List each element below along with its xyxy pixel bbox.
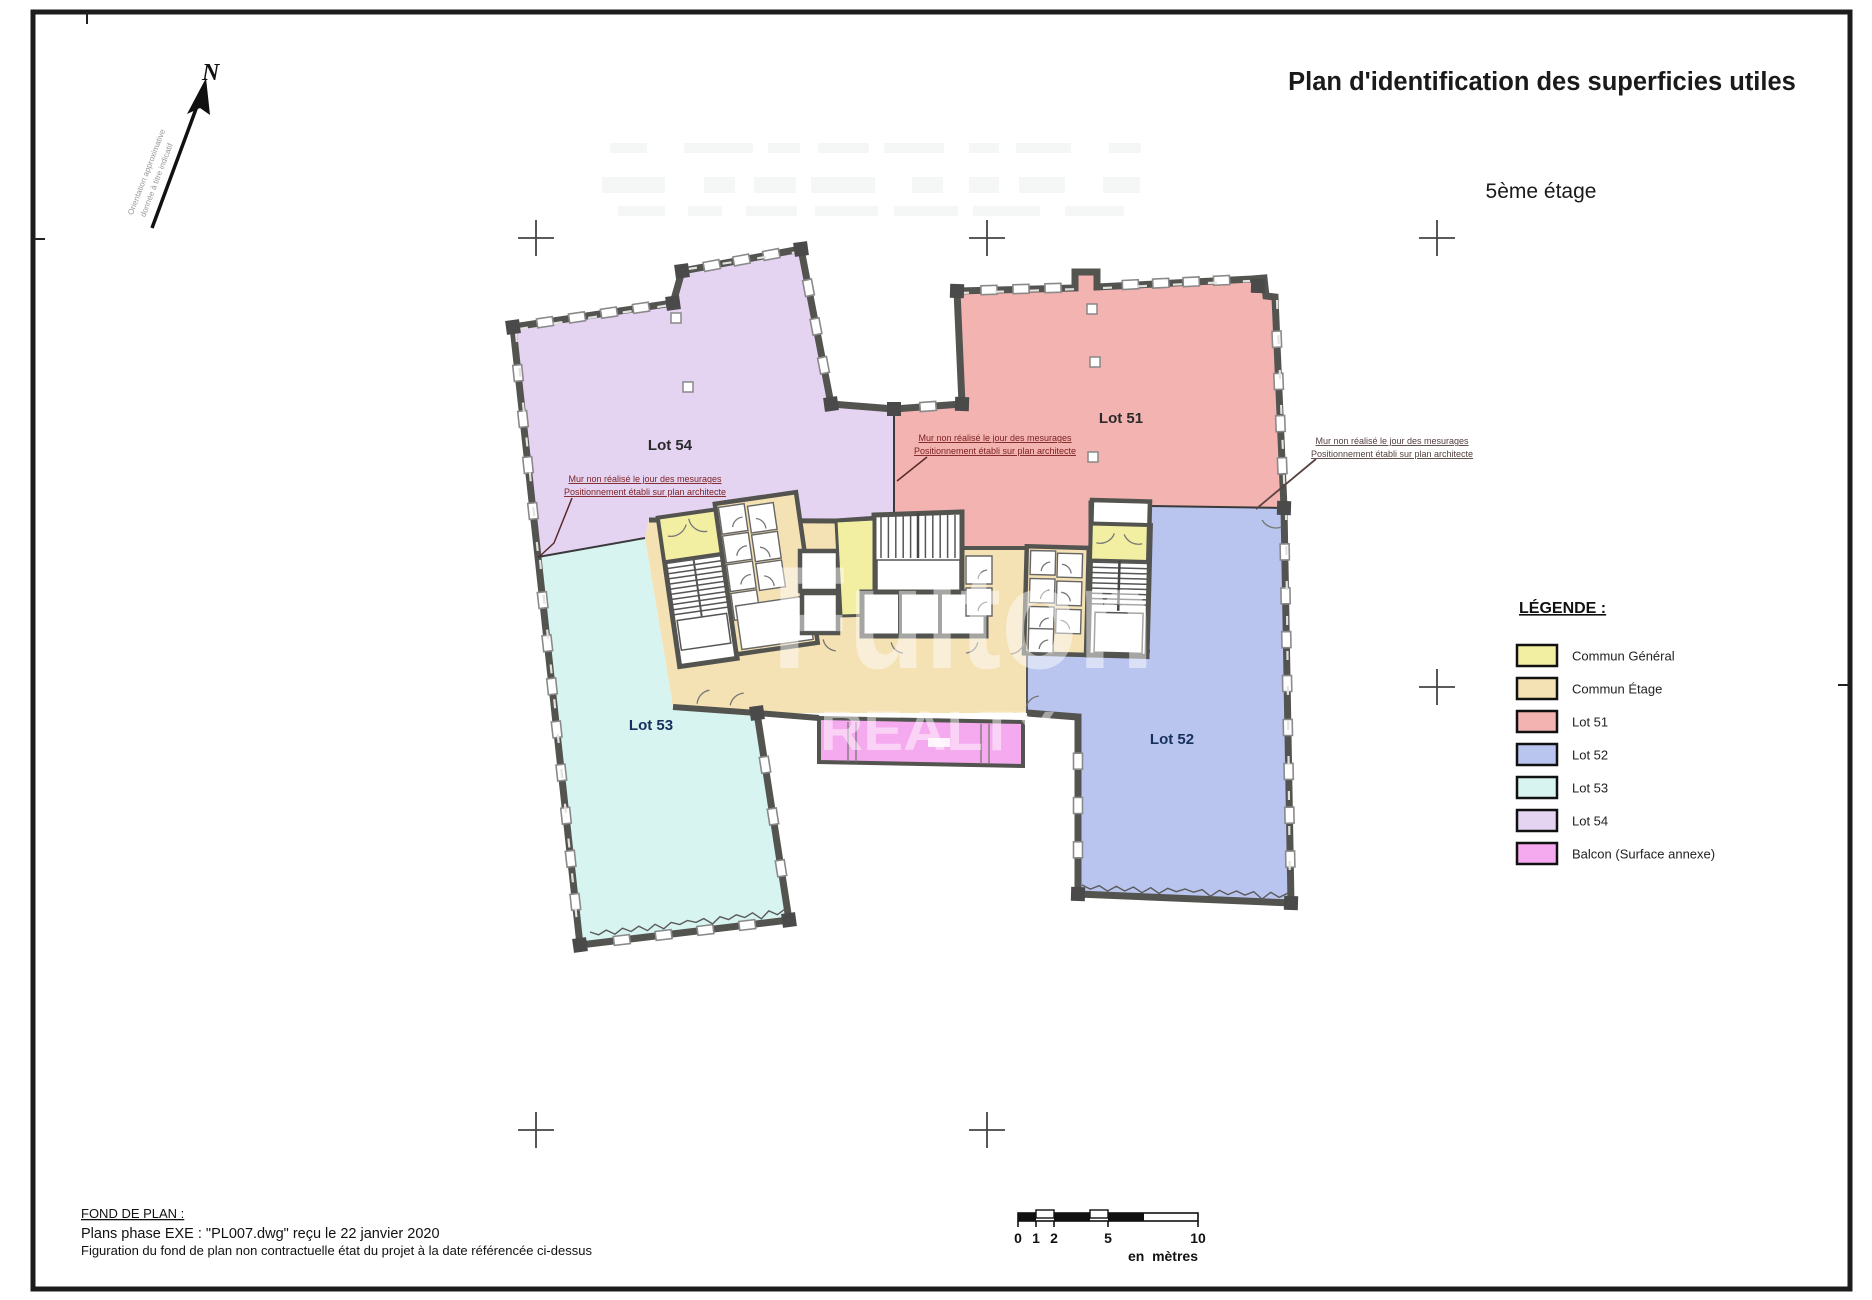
svg-text:5ème étage: 5ème étage xyxy=(1486,180,1597,203)
svg-text:Lot 54: Lot 54 xyxy=(648,437,693,454)
svg-text:Lot 54: Lot 54 xyxy=(1572,814,1608,829)
svg-text:Lot 53: Lot 53 xyxy=(629,717,673,734)
svg-text:Plans phase EXE : "PL007.dwg": Plans phase EXE : "PL007.dwg" reçu le 22… xyxy=(81,1226,440,1242)
svg-text:Lot 51: Lot 51 xyxy=(1099,410,1143,427)
svg-text:10: 10 xyxy=(1190,1230,1206,1246)
svg-text:Balcon (Surface annexe): Balcon (Surface annexe) xyxy=(1572,847,1715,862)
svg-text:N: N xyxy=(201,60,221,86)
svg-text:2: 2 xyxy=(1050,1230,1058,1246)
svg-text:Lot 52: Lot 52 xyxy=(1572,748,1608,763)
svg-text:Lot 51: Lot 51 xyxy=(1572,715,1608,730)
svg-text:0: 0 xyxy=(1014,1230,1022,1246)
svg-text:LÉGENDE :: LÉGENDE : xyxy=(1519,598,1606,617)
svg-text:FOND DE PLAN :: FOND DE PLAN : xyxy=(81,1206,184,1221)
svg-text:Mur non réalisé le jour des me: Mur non réalisé le jour des mesurages xyxy=(1315,436,1469,446)
svg-text:Lot 53: Lot 53 xyxy=(1572,781,1608,796)
svg-text:Positionnement établi sur plan: Positionnement établi sur plan architect… xyxy=(914,446,1076,456)
svg-text:Plan d'identification des supe: Plan d'identification des superficies ut… xyxy=(1288,68,1796,96)
svg-text:1: 1 xyxy=(1032,1230,1040,1246)
svg-text:Positionnement établi sur plan: Positionnement établi sur plan architect… xyxy=(564,487,726,497)
svg-text:Commun Étage: Commun Étage xyxy=(1572,682,1662,697)
svg-text:Commun Général: Commun Général xyxy=(1572,649,1675,664)
svg-text:Mur non réalisé le jour des me: Mur non réalisé le jour des mesurages xyxy=(568,474,722,484)
svg-text:Figuration du fond de plan non: Figuration du fond de plan non contractu… xyxy=(81,1243,592,1258)
svg-text:5: 5 xyxy=(1104,1230,1112,1246)
svg-text:Positionnement établi sur plan: Positionnement établi sur plan architect… xyxy=(1311,449,1473,459)
svg-text:Fulton: Fulton xyxy=(772,536,1154,699)
svg-text:Mur non réalisé le jour des me: Mur non réalisé le jour des mesurages xyxy=(918,433,1072,443)
svg-text:en mètres: en mètres xyxy=(1128,1248,1198,1264)
svg-text:REALTY: REALTY xyxy=(820,699,1055,762)
svg-text:Lot 52: Lot 52 xyxy=(1150,731,1194,748)
